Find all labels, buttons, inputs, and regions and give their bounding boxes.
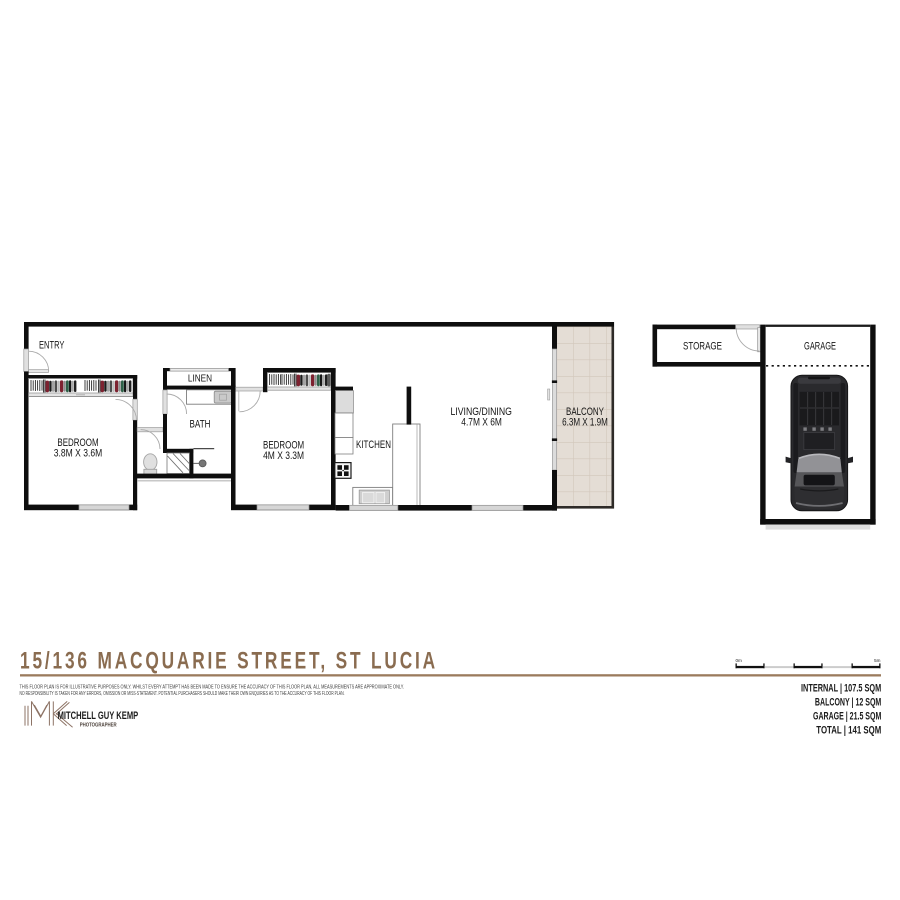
svg-text:PHOTOGRAPHER: PHOTOGRAPHER [80, 723, 117, 729]
svg-text:5m: 5m [874, 658, 881, 663]
svg-text:6.3M X 1.9M: 6.3M X 1.9M [562, 417, 608, 429]
svg-text:NO RESPONSIBILITY IS TAKEN FOR: NO RESPONSIBILITY IS TAKEN FOR ANY ERROR… [20, 691, 345, 697]
svg-text:BALCONY | 12 SQM: BALCONY | 12 SQM [815, 697, 882, 709]
svg-text:INTERNAL | 107.5 SQM: INTERNAL | 107.5 SQM [801, 683, 881, 695]
svg-text:15/136 MACQUARIE STREET, ST LU: 15/136 MACQUARIE STREET, ST LUCIA [20, 647, 438, 674]
svg-text:THIS FLOOR PLAN IS FOR ILLUSTR: THIS FLOOR PLAN IS FOR ILLUSTRATIVE PURP… [20, 685, 405, 691]
svg-text:KITCHEN: KITCHEN [356, 439, 391, 451]
svg-text:4M X 3.3M: 4M X 3.3M [263, 450, 304, 462]
svg-text:3.8M X 3.6M: 3.8M X 3.6M [54, 448, 102, 460]
svg-text:0m: 0m [736, 658, 743, 663]
svg-text:BATH: BATH [190, 418, 211, 430]
svg-text:STORAGE: STORAGE [683, 341, 722, 353]
svg-text:MITCHELL GUY KEMP: MITCHELL GUY KEMP [58, 710, 139, 722]
svg-text:LINEN: LINEN [188, 374, 212, 385]
svg-text:GARAGE: GARAGE [804, 341, 836, 353]
svg-text:ENTRY: ENTRY [39, 339, 64, 351]
svg-text:GARAGE | 21.5 SQM: GARAGE | 21.5 SQM [813, 711, 881, 723]
svg-text:4.7M X 6M: 4.7M X 6M [461, 417, 502, 429]
svg-text:TOTAL | 141 SQM: TOTAL | 141 SQM [816, 725, 881, 737]
